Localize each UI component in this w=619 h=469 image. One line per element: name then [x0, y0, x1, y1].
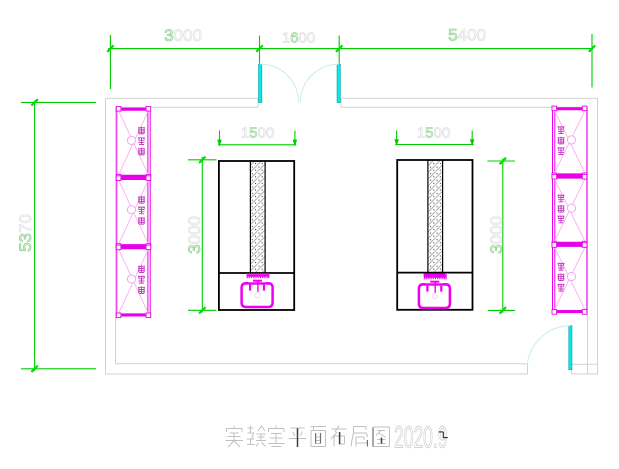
svg-text:1600: 1600: [282, 30, 315, 47]
svg-text:1500: 1500: [241, 125, 274, 142]
svg-text:3000: 3000: [185, 216, 204, 254]
svg-text:3000: 3000: [164, 26, 202, 45]
svg-text:5370: 5370: [16, 214, 35, 252]
svg-text:3000: 3000: [487, 216, 506, 254]
svg-text:1500: 1500: [417, 125, 450, 142]
svg-text:2020.9: 2020.9: [394, 422, 448, 455]
svg-text:5400: 5400: [448, 26, 486, 45]
